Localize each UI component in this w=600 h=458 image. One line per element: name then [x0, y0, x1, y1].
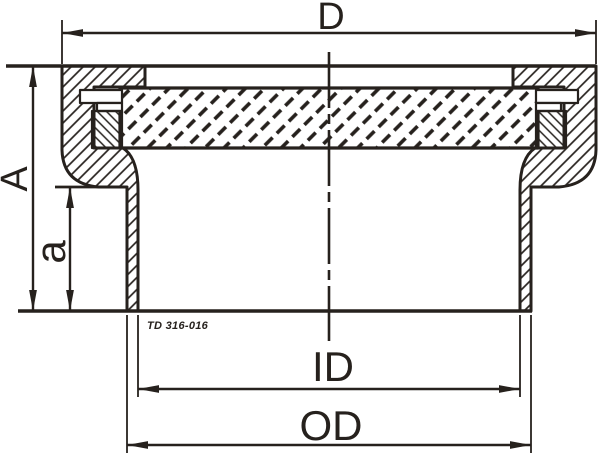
dim-label-a-inner: a: [27, 240, 74, 264]
dim-label-d: D: [317, 0, 344, 38]
clamp-ring-right: [536, 111, 566, 148]
clamp-bar-left: [97, 103, 122, 111]
dim-label-id: ID: [312, 343, 354, 390]
seal-groove-right: [536, 90, 578, 103]
part-note-text: TD 316-016: [147, 320, 209, 332]
clamp-ring-left: [92, 111, 122, 148]
dim-label-od: OD: [300, 402, 363, 449]
part-section: [6, 66, 596, 311]
drawing-canvas: D A a ID OD TD 316-016: [0, 0, 600, 458]
dim-label-a-overall: A: [0, 166, 36, 192]
clamp-bar-right: [536, 103, 561, 111]
technical-drawing: D A a ID OD TD 316-016: [0, 0, 600, 458]
seal-groove-left: [80, 90, 122, 103]
